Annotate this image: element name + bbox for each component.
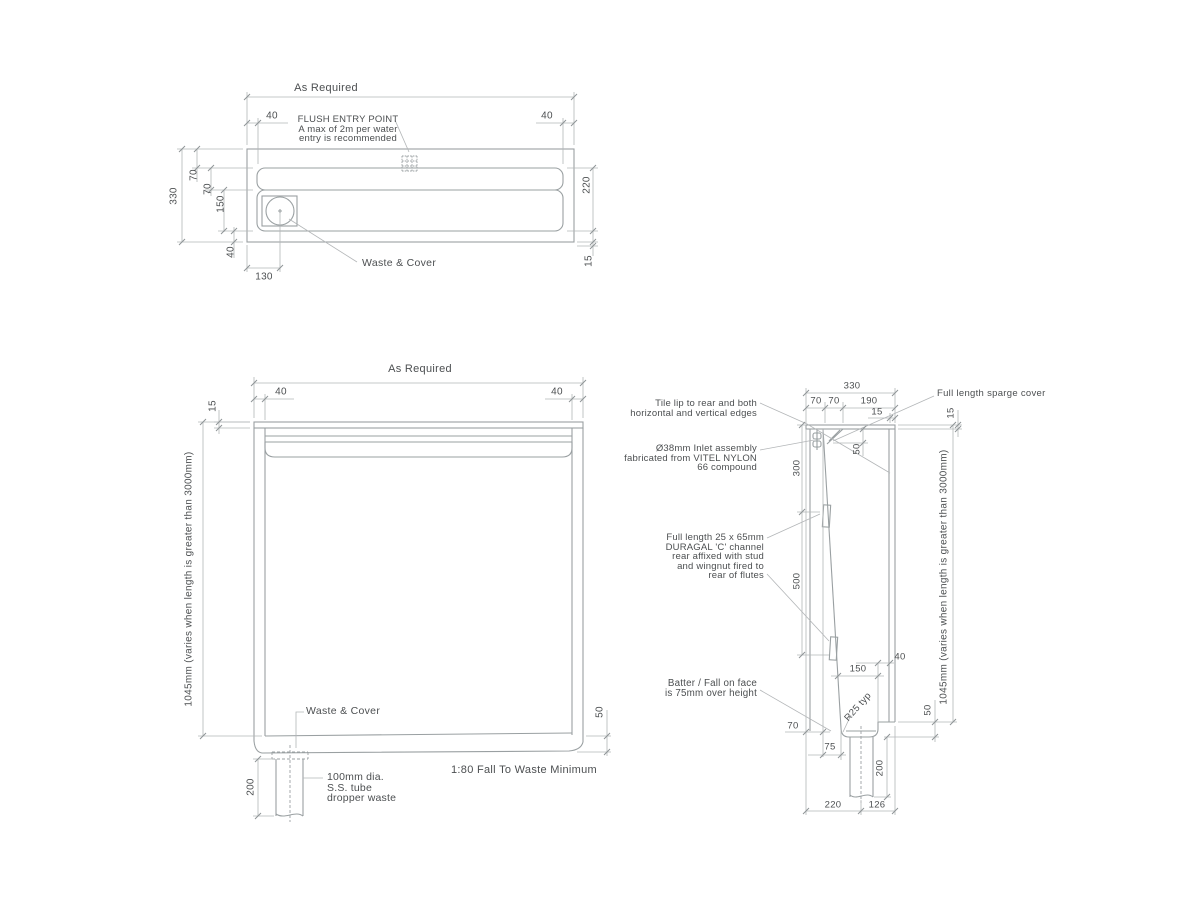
front-waste-cover-label: Waste & Cover xyxy=(306,705,380,717)
plan-dim-70a: 70 xyxy=(189,169,200,181)
front-inset-left-dim: 40 xyxy=(275,387,287,398)
plan-dim-70b: 70 xyxy=(203,183,214,195)
side-dim-190: 190 xyxy=(861,396,878,407)
plan-dim-15: 15 xyxy=(584,255,595,267)
front-inset-right-dim: 40 xyxy=(551,387,563,398)
side-dim-300: 300 xyxy=(792,460,803,477)
side-dim-50-bottom: 50 xyxy=(923,704,934,715)
plan-inset-left-dim: 40 xyxy=(266,111,278,122)
front-length-dim-label: As Required xyxy=(388,363,452,375)
fall-to-waste-note: 1:80 Fall To Waste Minimum xyxy=(451,764,597,776)
tile-lip-note-line2: horizontal and vertical edges xyxy=(577,409,757,419)
plan-dim-220: 220 xyxy=(582,176,593,194)
plan-dim-40-bottom: 40 xyxy=(226,246,237,258)
duragal-channel-note: Full length 25 x 65mm DURAGAL 'C' channe… xyxy=(584,533,764,581)
dropper-note-line3: dropper waste xyxy=(327,793,396,804)
front-dropper-dim-200: 200 xyxy=(246,778,257,796)
side-width-dim-330: 330 xyxy=(844,381,861,392)
flush-entry-grid-icon xyxy=(402,156,417,171)
plan-waste-cover-label: Waste & Cover xyxy=(362,257,436,269)
plan-dim-130: 130 xyxy=(255,272,273,283)
plan-inset-right-dim: 40 xyxy=(541,111,553,122)
side-dropper-dim-200: 200 xyxy=(875,760,886,777)
side-dim-150: 150 xyxy=(850,664,867,675)
side-sparge-dim-50: 50 xyxy=(852,443,863,454)
tile-lip-note: Tile lip to rear and both horizontal and… xyxy=(577,399,757,418)
flush-entry-note-line3: entry is recommended xyxy=(298,134,399,144)
side-dim-70b: 70 xyxy=(828,396,839,407)
sparge-cover-label: Full length sparge cover xyxy=(937,388,1046,399)
side-lip-height-dim-15: 15 xyxy=(946,407,957,418)
plan-depth-dim-330: 330 xyxy=(169,187,180,205)
front-lip-dim-15: 15 xyxy=(208,400,219,412)
dropper-note-line1: 100mm dia. xyxy=(327,772,396,783)
side-dim-70a: 70 xyxy=(810,396,821,407)
inlet-note-line3: 66 compound xyxy=(577,463,757,473)
plan-dim-150: 150 xyxy=(216,195,227,213)
side-dim-40: 40 xyxy=(894,652,905,663)
side-dim-220: 220 xyxy=(825,800,842,811)
flush-entry-note: FLUSH ENTRY POINT A max of 2m per water … xyxy=(298,115,399,144)
side-dim-126: 126 xyxy=(869,800,886,811)
batter-note-line2: is 75mm over height xyxy=(577,689,757,699)
side-dim-500: 500 xyxy=(792,573,803,590)
front-view-linework xyxy=(198,377,611,822)
plan-length-dim-label: As Required xyxy=(294,82,358,94)
side-dim-75: 75 xyxy=(824,742,835,753)
inlet-assembly-note: Ø38mm Inlet assembly fabricated from VIT… xyxy=(577,444,757,473)
front-height-dim-1045: 1045mm (varies when length is greater th… xyxy=(184,451,195,706)
side-height-dim-1045: 1045mm (varies when length is greater th… xyxy=(939,449,950,704)
dropper-waste-note: 100mm dia. S.S. tube dropper waste xyxy=(327,772,396,804)
technical-drawing-sheet: As Required 40 40 FLUSH ENTRY POINT A ma… xyxy=(0,0,1200,900)
front-shell-dim-50: 50 xyxy=(595,706,606,718)
side-dim-70-bottom: 70 xyxy=(787,721,798,732)
batter-fall-note: Batter / Fall on face is 75mm over heigh… xyxy=(577,679,757,700)
channel-note-line5: rear of flutes xyxy=(584,571,764,581)
side-tile-lip-dim-15: 15 xyxy=(871,407,882,418)
